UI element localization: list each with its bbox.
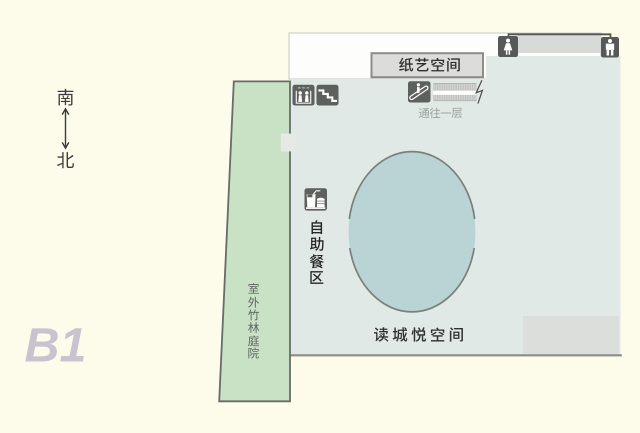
- svg-text:B1: B1: [25, 319, 87, 373]
